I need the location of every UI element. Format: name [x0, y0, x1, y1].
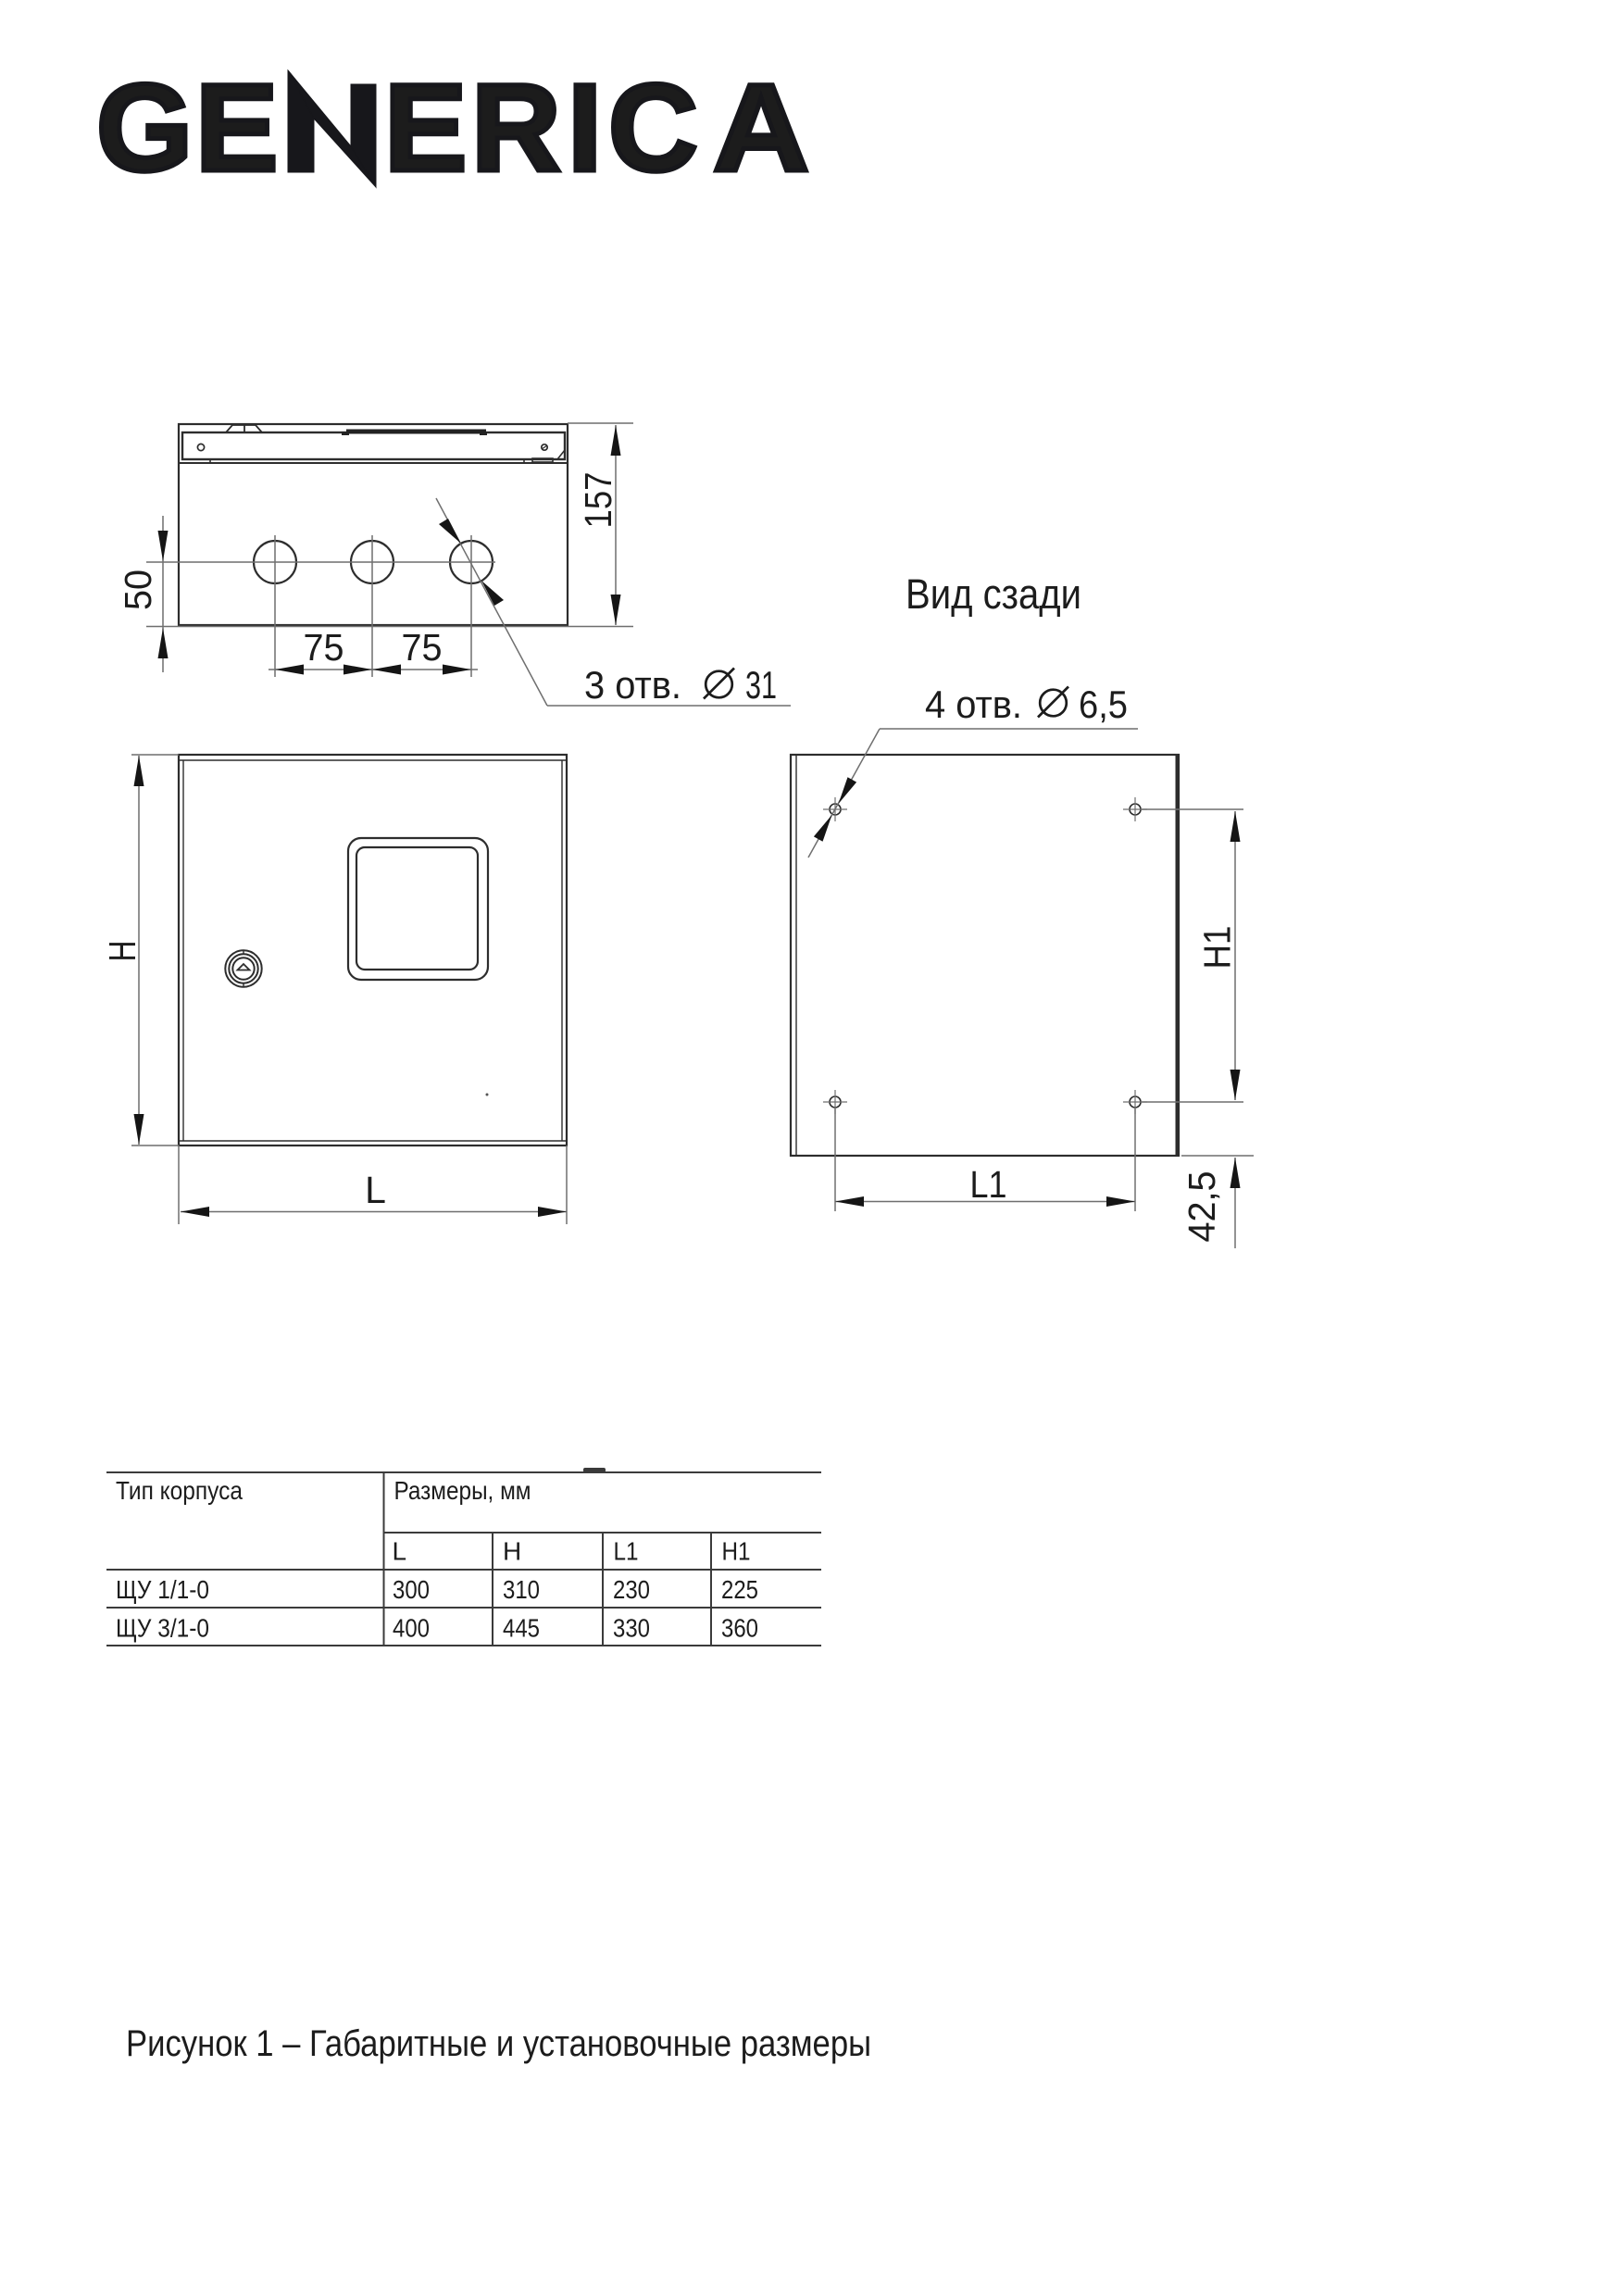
- svg-text:H1: H1: [722, 1537, 751, 1566]
- svg-text:H: H: [101, 941, 144, 962]
- svg-text:H1: H1: [1196, 926, 1239, 970]
- svg-text:ЩУ 1/1-0: ЩУ 1/1-0: [116, 1575, 209, 1604]
- svg-text:3 отв.: 3 отв.: [584, 663, 681, 707]
- svg-text:L1: L1: [614, 1537, 639, 1566]
- svg-text:ЩУ 3/1-0: ЩУ 3/1-0: [116, 1614, 209, 1643]
- svg-text:Вид сзади: Вид сзади: [906, 570, 1081, 618]
- svg-text:I: I: [568, 59, 602, 197]
- svg-text:E: E: [384, 59, 467, 197]
- svg-text:157: 157: [577, 472, 619, 529]
- svg-text:A: A: [713, 59, 809, 197]
- svg-text:L: L: [365, 1169, 386, 1211]
- svg-text:230: 230: [613, 1575, 650, 1604]
- svg-text:50: 50: [117, 570, 159, 610]
- svg-text:R: R: [471, 59, 561, 197]
- svg-text:4 отв.: 4 отв.: [925, 682, 1022, 726]
- svg-text:E: E: [195, 59, 278, 197]
- svg-text:400: 400: [393, 1614, 430, 1643]
- svg-text:75: 75: [402, 626, 443, 669]
- svg-text:G: G: [96, 59, 193, 197]
- svg-text:310: 310: [503, 1575, 540, 1604]
- svg-text:75: 75: [304, 626, 344, 669]
- svg-text:H: H: [503, 1537, 521, 1566]
- svg-text:300: 300: [393, 1575, 430, 1604]
- svg-text:Размеры, мм: Размеры, мм: [394, 1476, 531, 1505]
- svg-text:330: 330: [613, 1614, 650, 1643]
- svg-text:225: 225: [721, 1575, 758, 1604]
- svg-text:Рисунок 1 – Габаритные и устан: Рисунок 1 – Габаритные и установочные ра…: [126, 2023, 871, 2064]
- svg-text:360: 360: [721, 1614, 758, 1643]
- svg-text:Тип корпуса: Тип корпуса: [116, 1476, 243, 1505]
- svg-text:31: 31: [745, 663, 777, 707]
- svg-text:445: 445: [503, 1614, 540, 1643]
- svg-text:42,5: 42,5: [1181, 1171, 1223, 1243]
- svg-text:L: L: [393, 1537, 407, 1566]
- svg-text:6,5: 6,5: [1079, 682, 1128, 726]
- svg-text:L1: L1: [970, 1163, 1007, 1206]
- svg-text:C: C: [608, 59, 698, 197]
